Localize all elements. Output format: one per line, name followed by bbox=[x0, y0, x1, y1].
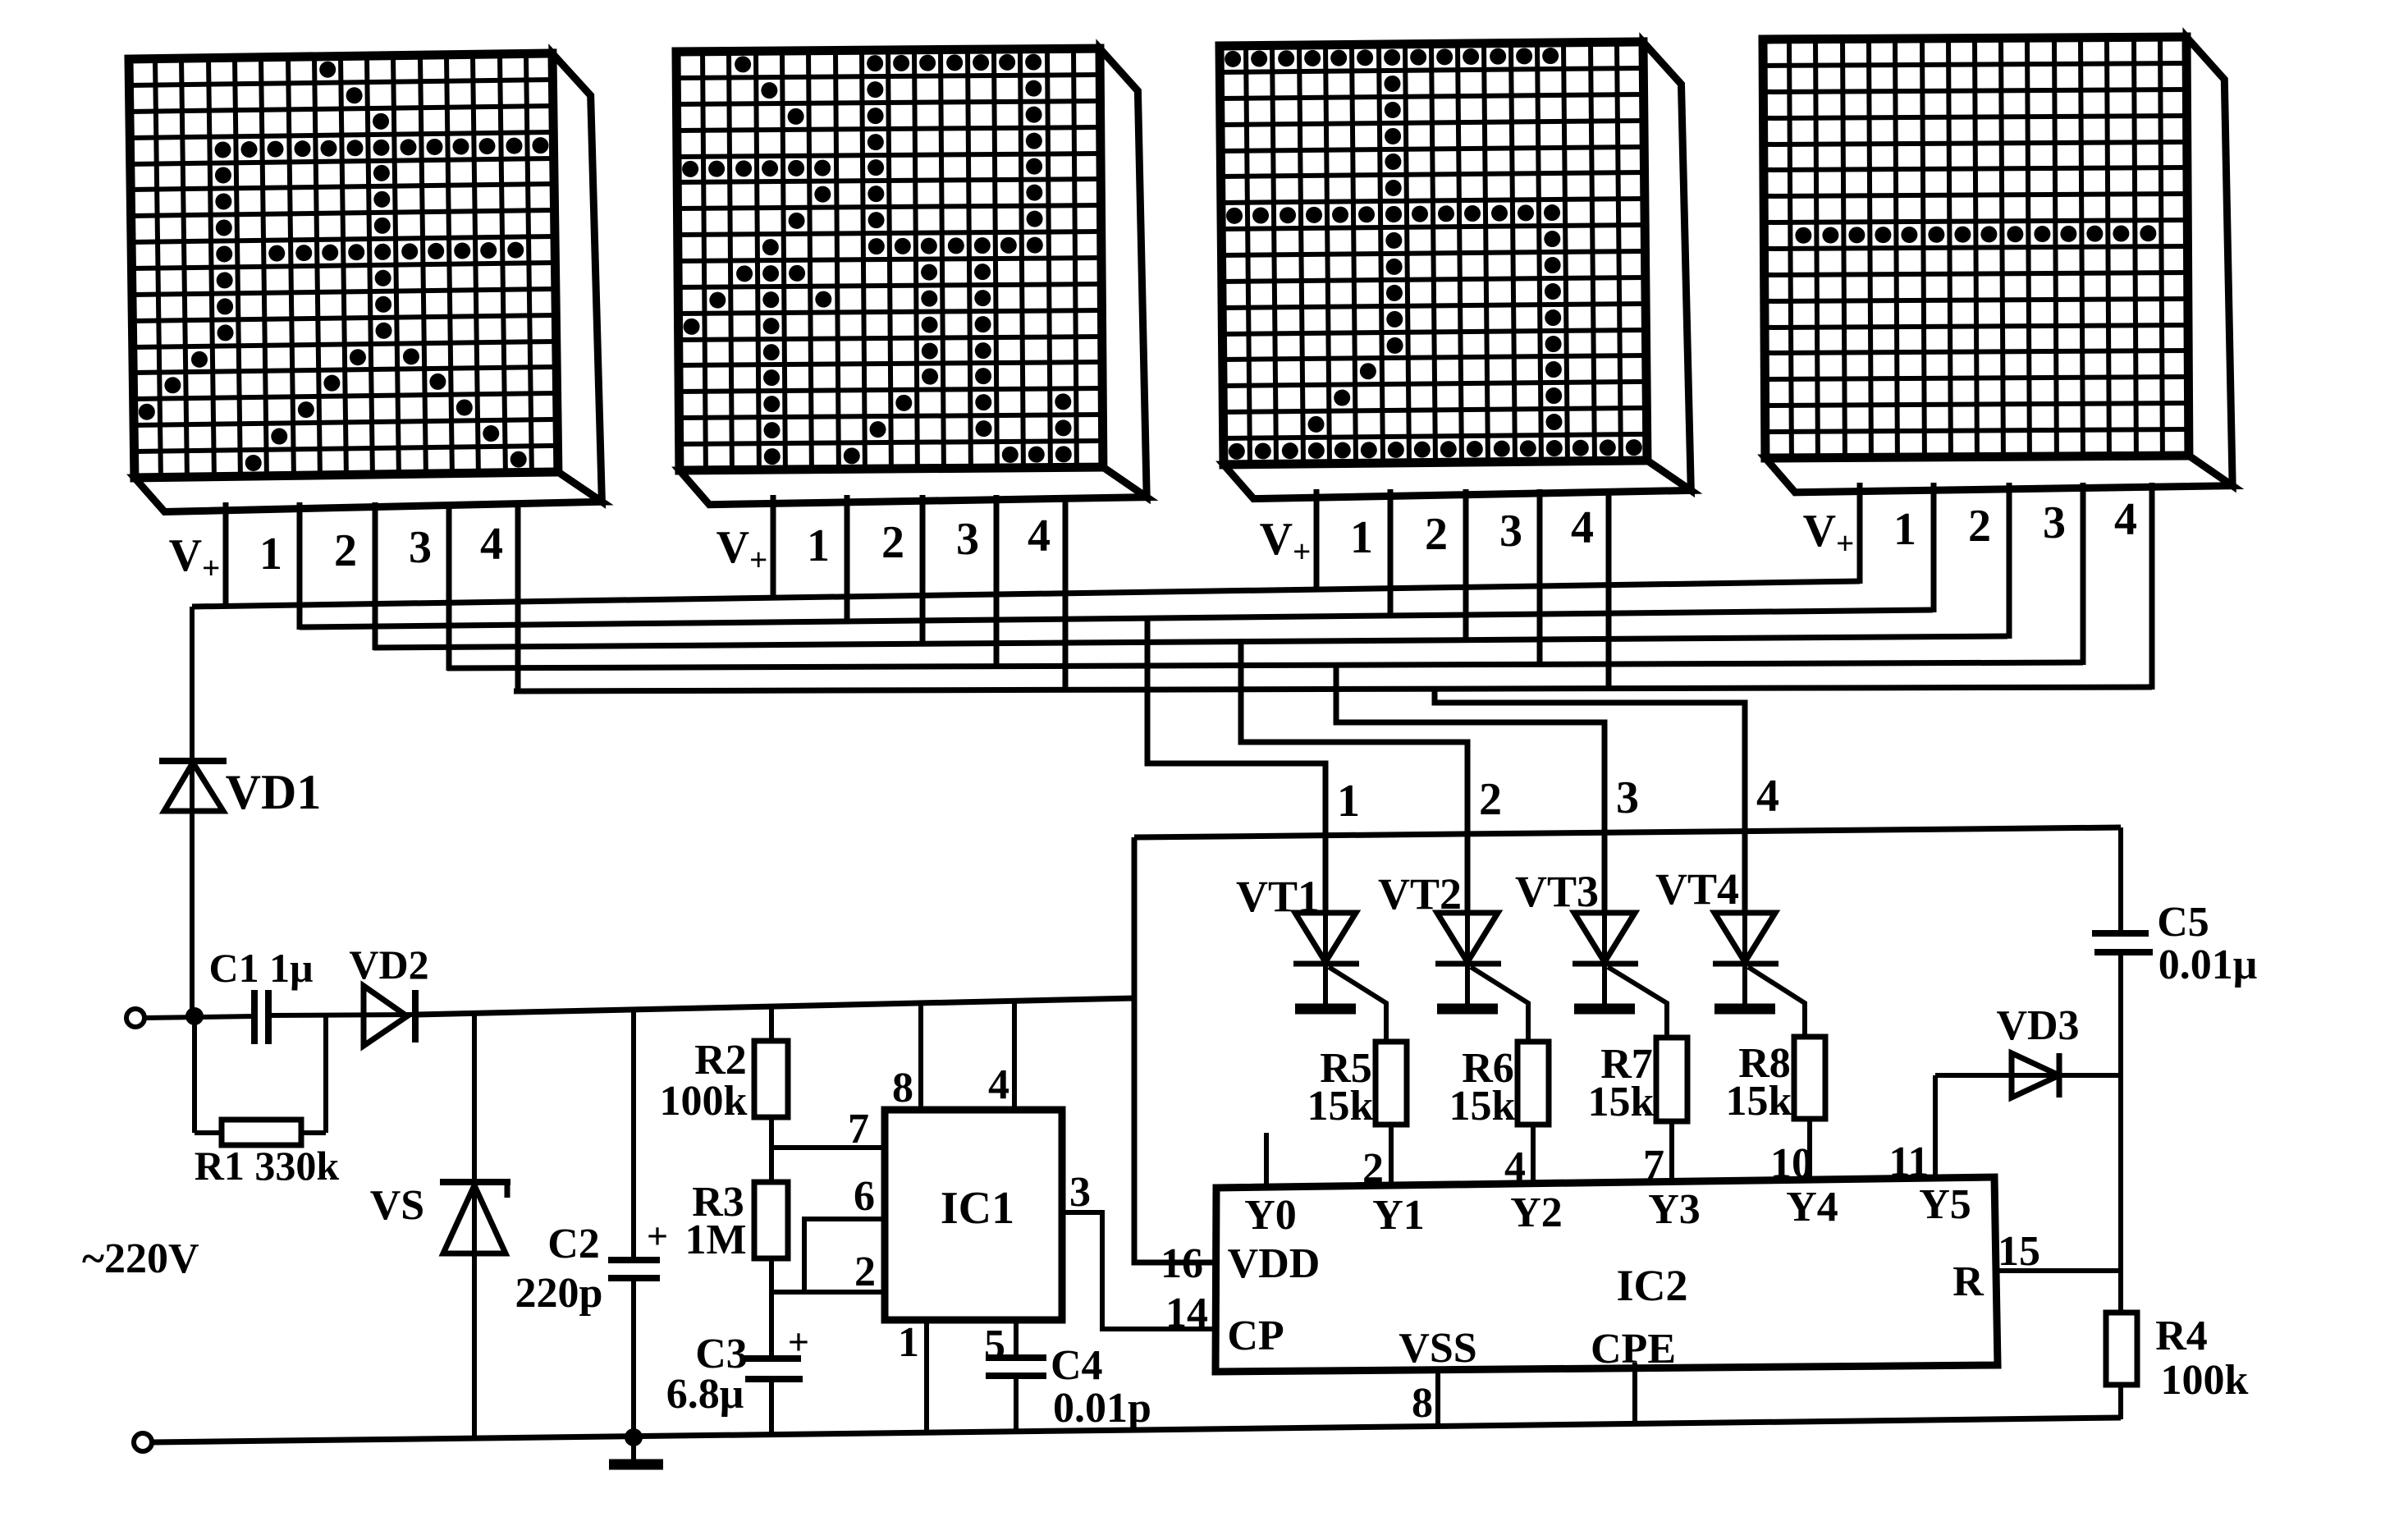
svg-text:4: 4 bbox=[1028, 511, 1051, 561]
svg-text:4: 4 bbox=[988, 1061, 1009, 1108]
svg-text:1: 1 bbox=[259, 529, 282, 580]
svg-text:VDD: VDD bbox=[1228, 1240, 1321, 1287]
svg-text:C5: C5 bbox=[2157, 899, 2209, 946]
svg-text:1M: 1M bbox=[684, 1217, 746, 1263]
svg-text:R: R bbox=[1952, 1258, 1985, 1305]
svg-text:Y5: Y5 bbox=[1919, 1181, 1971, 1228]
svg-text:VT1: VT1 bbox=[1236, 872, 1320, 921]
svg-text:C1 1μ: C1 1μ bbox=[209, 945, 314, 991]
svg-text:11: 11 bbox=[1888, 1139, 1929, 1185]
svg-text:~220V: ~220V bbox=[82, 1235, 199, 1282]
svg-text:Y0: Y0 bbox=[1244, 1192, 1297, 1239]
svg-text:VD3: VD3 bbox=[1996, 1002, 2079, 1049]
svg-text:0.01p: 0.01p bbox=[1053, 1385, 1151, 1432]
svg-text:1: 1 bbox=[1893, 504, 1916, 555]
svg-text:5: 5 bbox=[984, 1322, 1005, 1368]
svg-text:1: 1 bbox=[1350, 512, 1373, 563]
svg-text:VD2: VD2 bbox=[349, 942, 428, 988]
svg-text:Y1: Y1 bbox=[1372, 1192, 1425, 1239]
svg-text:2: 2 bbox=[1425, 509, 1448, 560]
svg-text:4: 4 bbox=[480, 519, 503, 570]
svg-text:IC2: IC2 bbox=[1616, 1261, 1687, 1310]
svg-text:VD1: VD1 bbox=[226, 765, 322, 819]
svg-text:V+: V+ bbox=[1260, 514, 1312, 570]
svg-text:6: 6 bbox=[854, 1173, 875, 1220]
svg-text:VT4: VT4 bbox=[1655, 864, 1739, 914]
svg-text:3: 3 bbox=[1616, 772, 1639, 823]
svg-text:1: 1 bbox=[1337, 776, 1360, 827]
svg-text:V+: V+ bbox=[1803, 506, 1855, 561]
svg-text:4: 4 bbox=[2114, 494, 2137, 545]
svg-text:7: 7 bbox=[848, 1106, 869, 1153]
svg-text:3: 3 bbox=[1499, 506, 1522, 557]
svg-text:CP: CP bbox=[1227, 1313, 1284, 1359]
svg-text:15: 15 bbox=[1998, 1228, 2040, 1275]
svg-text:Y3: Y3 bbox=[1648, 1186, 1701, 1233]
svg-text:R2: R2 bbox=[694, 1037, 747, 1084]
svg-text:2: 2 bbox=[881, 517, 904, 568]
svg-text:R1 330k: R1 330k bbox=[195, 1143, 340, 1189]
svg-text:1: 1 bbox=[807, 520, 830, 571]
svg-text:3: 3 bbox=[956, 514, 979, 565]
svg-text:2: 2 bbox=[1968, 501, 1991, 552]
svg-text:R4: R4 bbox=[2155, 1313, 2208, 1359]
svg-text:6.8μ: 6.8μ bbox=[666, 1371, 744, 1418]
svg-text:8: 8 bbox=[892, 1065, 913, 1111]
svg-text:+: + bbox=[788, 1321, 809, 1363]
svg-text:2: 2 bbox=[334, 525, 357, 576]
svg-text:C4: C4 bbox=[1051, 1342, 1103, 1389]
svg-text:15k: 15k bbox=[1449, 1083, 1516, 1130]
svg-text:IC1: IC1 bbox=[941, 1183, 1014, 1234]
svg-text:3: 3 bbox=[2043, 497, 2066, 548]
svg-text:VSS: VSS bbox=[1399, 1325, 1476, 1372]
svg-text:220p: 220p bbox=[515, 1270, 603, 1317]
svg-text:V+: V+ bbox=[169, 530, 221, 586]
svg-text:4: 4 bbox=[1756, 771, 1779, 822]
svg-text:VS: VS bbox=[370, 1182, 424, 1229]
svg-text:VT3: VT3 bbox=[1515, 867, 1599, 916]
svg-text:4: 4 bbox=[1571, 502, 1594, 553]
svg-text:0.01μ: 0.01μ bbox=[2159, 942, 2257, 988]
svg-text:100k: 100k bbox=[2161, 1357, 2249, 1404]
svg-text:3: 3 bbox=[1069, 1169, 1091, 1216]
svg-text:Y2: Y2 bbox=[1510, 1189, 1563, 1236]
svg-text:Y4: Y4 bbox=[1786, 1184, 1838, 1230]
svg-text:1: 1 bbox=[898, 1319, 919, 1366]
svg-text:C2: C2 bbox=[547, 1221, 600, 1267]
svg-text:2: 2 bbox=[854, 1249, 876, 1295]
svg-text:15k: 15k bbox=[1726, 1078, 1792, 1125]
svg-text:3: 3 bbox=[409, 522, 432, 573]
svg-text:+: + bbox=[647, 1215, 668, 1257]
svg-text:V+: V+ bbox=[716, 522, 768, 578]
svg-text:8: 8 bbox=[1412, 1380, 1433, 1427]
svg-text:15k: 15k bbox=[1307, 1083, 1374, 1130]
svg-text:100k: 100k bbox=[660, 1078, 748, 1125]
svg-text:VT2: VT2 bbox=[1378, 869, 1462, 919]
svg-text:15k: 15k bbox=[1588, 1079, 1655, 1125]
svg-text:2: 2 bbox=[1479, 774, 1502, 825]
